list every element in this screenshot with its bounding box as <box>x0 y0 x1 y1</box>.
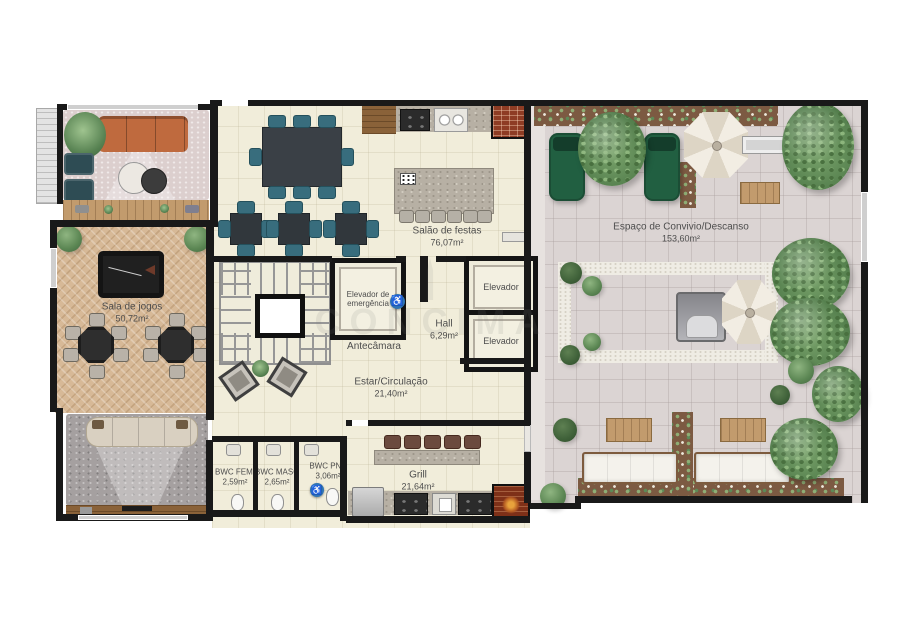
fountain-basin <box>686 315 717 338</box>
chair <box>318 115 336 128</box>
wall <box>50 220 212 227</box>
bush <box>788 358 814 384</box>
chair <box>309 220 322 238</box>
wall <box>524 452 531 503</box>
pool-felt <box>103 256 159 293</box>
garden-bench <box>582 452 678 484</box>
chair <box>342 201 360 214</box>
chair <box>169 313 185 327</box>
chaise-pillow <box>648 137 675 151</box>
toilet <box>231 494 244 511</box>
chair <box>143 348 159 362</box>
room-name: Salão de festas <box>413 225 482 236</box>
stool <box>424 435 441 449</box>
room-label-salao-festas: Salão de festas 76,07m² <box>413 225 482 248</box>
wood-coffee-table <box>720 418 766 442</box>
game-table-top <box>78 327 114 363</box>
armchair <box>64 153 94 175</box>
wall <box>861 100 868 503</box>
sink <box>226 444 241 456</box>
grill-bar-counter <box>374 450 480 465</box>
appliance <box>458 493 492 515</box>
wall <box>212 510 346 517</box>
room-area: 21,40m² <box>354 389 427 400</box>
wall <box>212 256 332 262</box>
wall <box>436 256 466 262</box>
game-table-top <box>158 327 194 363</box>
chair <box>341 148 354 166</box>
chair <box>218 220 231 238</box>
wall <box>575 496 852 503</box>
chair <box>293 115 311 128</box>
room-label-espaco-convivio: Espaço de Convivio/Descanso 153,60m² <box>613 221 749 244</box>
sofa <box>98 116 188 152</box>
stool <box>384 435 401 449</box>
window <box>67 104 200 110</box>
watermark: CONCIMA <box>315 301 550 343</box>
stool <box>415 210 430 223</box>
cooktop <box>394 493 428 515</box>
bush <box>582 276 602 296</box>
stool <box>431 210 446 223</box>
toilet <box>271 494 284 511</box>
door-opening <box>222 100 248 106</box>
dominoes <box>400 173 416 185</box>
stool <box>444 435 461 449</box>
double-sink <box>434 108 468 132</box>
room-name: Grill <box>409 469 427 480</box>
stool <box>463 210 478 223</box>
stair-treads <box>221 263 251 363</box>
chaise-lounge <box>644 133 680 201</box>
room-area: 2,59m² <box>215 477 255 487</box>
room-area: 153,60m² <box>613 234 749 245</box>
wall <box>340 436 347 521</box>
room-name: Sala de jogos <box>102 301 163 312</box>
room-label-bwc-fem: BWC FEM. 2,59m² <box>215 467 255 487</box>
kitchen-cabinet <box>362 104 396 134</box>
square-table <box>230 213 262 245</box>
gravel-path-bottom <box>558 350 778 363</box>
chair <box>266 220 279 238</box>
wall <box>524 100 531 425</box>
flowerbed-top <box>534 106 778 126</box>
wall <box>460 358 530 364</box>
bush <box>770 385 790 405</box>
bush <box>560 345 580 365</box>
umbrella-center <box>745 308 755 318</box>
chair <box>268 115 286 128</box>
wall <box>346 420 530 426</box>
tree <box>770 418 838 480</box>
room-label-estar: Estar/Circulação 21,40m² <box>354 376 427 399</box>
dining-table <box>262 127 342 187</box>
wall-shelf <box>502 232 526 242</box>
tree <box>782 102 854 190</box>
stool <box>399 210 414 223</box>
wood-coffee-table <box>606 418 652 442</box>
cooktop <box>400 109 430 131</box>
fountain <box>676 292 726 342</box>
toilet <box>326 488 339 506</box>
balcony-ledge <box>36 108 58 204</box>
room-name: Estar/Circulação <box>354 376 427 387</box>
cushion <box>176 420 188 429</box>
wood-table <box>740 182 780 204</box>
tree <box>770 298 850 366</box>
gravel-path-top <box>558 262 778 275</box>
chair <box>285 201 303 214</box>
stool <box>477 210 492 223</box>
chaise-pillow <box>553 137 580 151</box>
chair <box>293 186 311 199</box>
wall <box>420 256 428 302</box>
potted-plant <box>64 112 106 158</box>
stool <box>447 210 462 223</box>
room-label-grill: Grill 21,64m² <box>401 469 434 492</box>
wall <box>198 104 212 110</box>
floor-plan: Sala de jogos 50,72m² <box>0 0 900 636</box>
refrigerator <box>352 487 384 517</box>
chair <box>63 348 79 362</box>
small-plant <box>160 204 169 213</box>
stool <box>464 435 481 449</box>
pool-table <box>98 251 164 298</box>
armchair-seat <box>276 366 298 388</box>
decor-item <box>80 507 92 514</box>
wall <box>206 220 214 420</box>
wall <box>56 408 63 520</box>
wall <box>530 503 581 509</box>
sink <box>266 444 281 456</box>
chair <box>113 348 129 362</box>
chair <box>323 220 336 238</box>
tree <box>578 112 646 186</box>
door-opening <box>352 420 368 426</box>
umbrella <box>684 112 748 178</box>
bush <box>553 418 577 442</box>
bush <box>560 262 582 284</box>
tree <box>812 366 864 422</box>
room-label-bwc-masc: BWC MASC 2,65m² <box>255 467 299 487</box>
window <box>861 192 868 262</box>
glass-door <box>524 425 531 452</box>
game-table <box>71 320 121 370</box>
umbrella <box>722 280 776 344</box>
room-name: BWC MASC <box>255 467 299 476</box>
room-name: BWC FEM. <box>215 467 255 476</box>
coffee-table <box>141 168 167 194</box>
room-name: Espaço de Convivio/Descanso <box>613 221 749 232</box>
wall <box>210 100 218 227</box>
cushion <box>92 420 104 429</box>
chair <box>89 313 105 327</box>
wall <box>212 100 868 106</box>
wall <box>396 256 406 262</box>
sink <box>304 444 319 456</box>
stool <box>404 435 421 449</box>
chair <box>268 186 286 199</box>
room-area: 76,07m² <box>413 238 482 249</box>
sink <box>432 493 456 515</box>
window <box>50 248 57 288</box>
square-table <box>278 213 310 245</box>
wall <box>206 440 213 521</box>
chair <box>89 365 105 379</box>
decor-item <box>185 205 199 213</box>
wall <box>57 104 63 204</box>
tv <box>122 506 152 511</box>
wall <box>212 436 346 442</box>
stair-void <box>255 294 305 338</box>
square-table <box>335 213 367 245</box>
game-table <box>151 320 201 370</box>
window <box>78 515 188 520</box>
wheelchair-icon: ♿ <box>310 483 324 497</box>
umbrella-center <box>712 141 722 151</box>
decor-item <box>75 205 89 213</box>
planter-strip <box>680 162 696 208</box>
bush <box>583 333 601 351</box>
chair <box>318 186 336 199</box>
chair <box>249 148 262 166</box>
potted-plant <box>252 360 269 377</box>
small-plant <box>104 205 113 214</box>
chair <box>342 244 360 257</box>
wall <box>253 442 258 512</box>
chair <box>237 201 255 214</box>
chair <box>169 365 185 379</box>
chair <box>366 220 379 238</box>
wall <box>346 516 530 523</box>
bush <box>56 226 82 252</box>
armchair-seat <box>228 370 250 392</box>
room-area: 2,65m² <box>255 477 299 487</box>
wall <box>294 442 299 512</box>
